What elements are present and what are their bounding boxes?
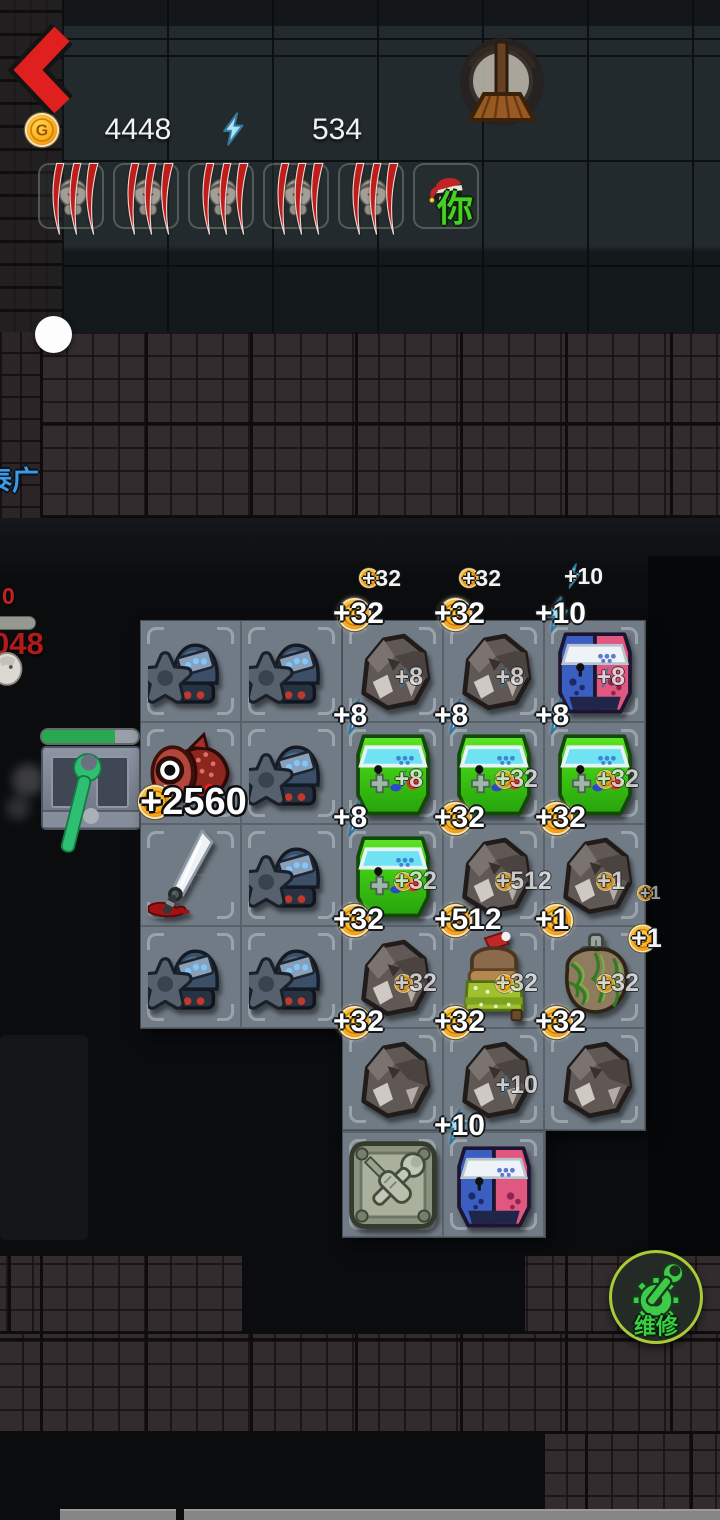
grid-cell[interactable]	[242, 723, 341, 823]
badge-text: +1	[535, 905, 569, 935]
popup-text: +1	[631, 925, 662, 952]
gold-coin-icon	[23, 111, 61, 149]
claw-marks-icon	[186, 147, 260, 251]
you-slot-label: 你	[437, 191, 473, 227]
squad-slot-dead[interactable]	[338, 163, 404, 229]
bg-brick-block	[545, 1434, 720, 1520]
repair-progress-bar	[40, 728, 140, 745]
arcadePink-item	[448, 1139, 540, 1231]
popup-text: +32	[462, 567, 501, 590]
grid-cell[interactable]	[242, 927, 341, 1027]
grid-cell[interactable]	[242, 825, 341, 925]
repair-station[interactable]	[38, 724, 146, 852]
grid-cell[interactable]	[141, 621, 240, 721]
squad-slot-dead[interactable]	[113, 163, 179, 229]
sub-label-text: +32	[496, 971, 538, 996]
sub-label-text: +8	[597, 665, 626, 690]
popup-text: +1	[640, 884, 661, 902]
claw-marks-icon	[36, 147, 110, 251]
turret-item	[148, 934, 234, 1020]
damage-number-small: 0	[2, 583, 15, 610]
turret-item	[249, 934, 335, 1020]
badge-text: +32	[535, 1007, 586, 1037]
game-screen: G	[0, 0, 720, 1520]
popup-text: +2560	[140, 783, 247, 821]
rock-item	[549, 1033, 641, 1125]
bg-bottom-strip	[60, 1509, 176, 1520]
popup-text: +10	[564, 565, 603, 588]
bg-brick-block	[0, 1334, 720, 1434]
sub-label-text: +8	[395, 665, 424, 690]
repair-button[interactable]: 维修	[609, 1250, 703, 1344]
badge-text: +10	[535, 599, 586, 629]
bg-bottom-strip	[184, 1509, 720, 1520]
claw-marks-icon	[336, 147, 410, 251]
badge-text: +8	[333, 803, 367, 833]
sub-label-text: +10	[496, 1073, 538, 1098]
toolbox-item	[346, 1138, 440, 1232]
back-button[interactable]	[10, 24, 76, 116]
grid-cell[interactable]: +32	[343, 1029, 442, 1129]
sub-label-text: +32	[597, 971, 639, 996]
repair-button-label: 维修	[612, 1309, 700, 1341]
badge-text: +8	[333, 701, 367, 731]
badge-text: +32	[434, 1007, 485, 1037]
claw-marks-icon	[261, 147, 335, 251]
repair-progress-fill	[42, 730, 115, 743]
player-name: 泰广	[0, 459, 39, 498]
smoke-puff	[6, 796, 30, 820]
sub-label-text: +32	[496, 767, 538, 792]
grid-cell[interactable]	[242, 621, 341, 721]
badge-text: +32	[434, 803, 485, 833]
turret-item	[249, 628, 335, 714]
energy-amount: 534	[295, 112, 379, 148]
knife-item	[145, 829, 237, 921]
sub-label-text: +512	[496, 869, 552, 894]
badge-text: +32	[333, 599, 384, 629]
turret-item	[249, 832, 335, 918]
squad-slot-you[interactable]: 你	[413, 163, 479, 229]
grid-cell[interactable]: +10	[444, 1133, 543, 1236]
sub-label-text: +32	[395, 971, 437, 996]
popup-text: +32	[362, 567, 401, 590]
pet-sprite	[0, 645, 26, 689]
badge-text: +32	[333, 905, 384, 935]
bg-right-dark	[648, 556, 720, 1260]
badge-text: +32	[333, 1007, 384, 1037]
turret-item	[148, 628, 234, 714]
smoke-puff	[12, 764, 44, 796]
squad-slot-dead[interactable]	[188, 163, 254, 229]
energy-bolt-icon	[216, 106, 250, 152]
grid-cell[interactable]	[141, 927, 240, 1027]
bg-left-patch	[0, 1035, 88, 1240]
sub-label-text: +8	[496, 665, 525, 690]
badge-text: +8	[434, 701, 468, 731]
bg-brick-block	[0, 1256, 242, 1334]
rock-item	[347, 1033, 439, 1125]
gold-amount: 4448	[96, 112, 180, 148]
badge-text: +32	[434, 599, 485, 629]
joystick-dot[interactable]	[35, 316, 72, 353]
broom-decoration	[452, 32, 552, 132]
bg-brick-band	[0, 332, 720, 518]
badge-text: +32	[535, 803, 586, 833]
grid-cell[interactable]: +32	[545, 1029, 644, 1129]
sub-label-text: +32	[597, 767, 639, 792]
sub-label-text: +8	[395, 767, 424, 792]
badge-text: +10	[434, 1111, 485, 1141]
squad-slot-dead[interactable]	[263, 163, 329, 229]
sub-label-text: +1	[597, 869, 626, 894]
badge-text: +8	[535, 701, 569, 731]
sub-label-text: +32	[395, 869, 437, 894]
claw-marks-icon	[111, 147, 185, 251]
squad-slot-dead[interactable]	[38, 163, 104, 229]
turret-item	[249, 730, 335, 816]
badge-text: +512	[434, 905, 502, 935]
grid-cell[interactable]	[141, 825, 240, 925]
grid-cell[interactable]	[343, 1133, 442, 1236]
